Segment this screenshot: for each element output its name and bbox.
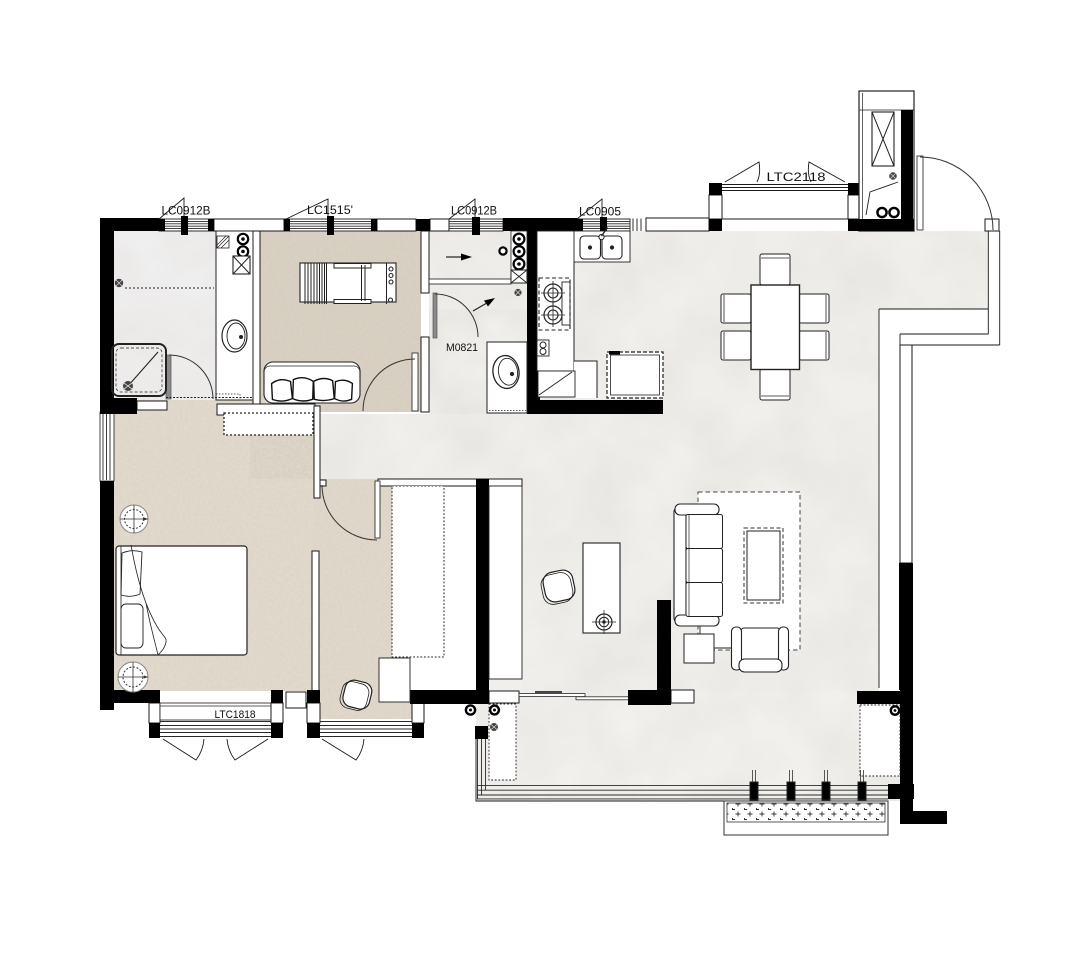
svg-text:LTC2118: LTC2118 bbox=[767, 170, 826, 184]
svg-text:LTC1818: LTC1818 bbox=[215, 709, 256, 721]
svg-text:LC0905: LC0905 bbox=[579, 205, 621, 219]
svg-text:M0821: M0821 bbox=[446, 342, 478, 354]
svg-text:LC0912B: LC0912B bbox=[162, 204, 211, 218]
svg-text:LC1515': LC1515' bbox=[307, 203, 353, 217]
svg-text:LC0912B: LC0912B bbox=[451, 204, 497, 218]
